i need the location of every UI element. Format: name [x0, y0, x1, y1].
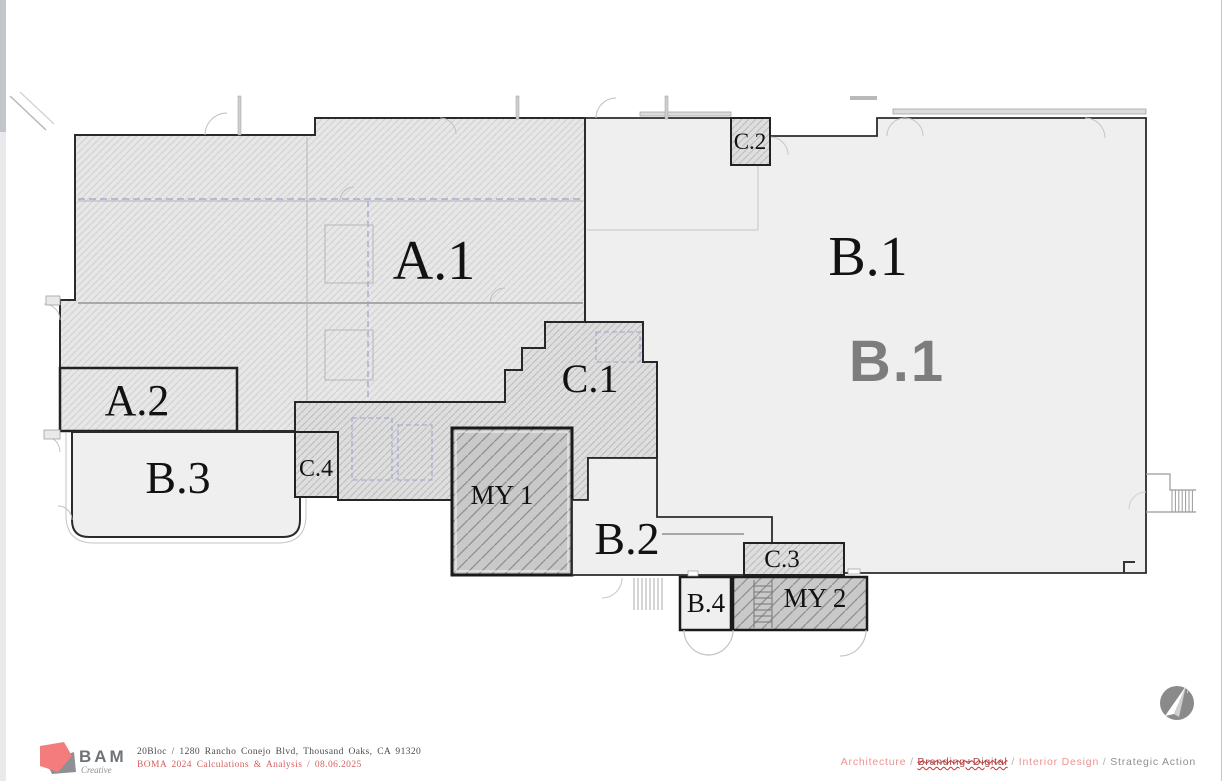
brand-tagline: Creative — [81, 765, 112, 775]
zone-b1-label: B.1 — [828, 226, 907, 288]
window-band — [893, 109, 1146, 114]
north-arrow-icon: N — [1160, 681, 1194, 720]
zone-c1-label: C.1 — [562, 356, 619, 401]
zone-a1-label: A.1 — [393, 230, 475, 292]
boma-plan-sheet: A.1 B.1 B.1 A.2 B.3 B.2 C.1 C.2 C.3 C.4 … — [0, 0, 1228, 781]
services-tagline: Architecture / Branding+Digital / Interi… — [841, 756, 1196, 768]
service-branding-digital: Branding+Digital — [918, 756, 1008, 768]
zone-b1-watermark: B.1 — [849, 329, 945, 394]
zone-my2-label: MY 2 — [784, 583, 847, 613]
zone-b3-label: B.3 — [145, 452, 210, 503]
zone-a2-label: A.2 — [105, 376, 170, 425]
service-separator: / — [1011, 756, 1015, 768]
bam-logo-icon — [36, 740, 80, 776]
zone-c2-label: C.2 — [734, 129, 767, 154]
address-line: 20Bloc / 1280 Rancho Conejo Blvd, Thousa… — [137, 747, 421, 757]
service-interior-design: Interior Design — [1019, 756, 1099, 768]
brand-name: BAM — [79, 747, 127, 767]
boma-line: BOMA 2024 Calculations & Analysis / 08.0… — [137, 760, 362, 770]
floor-plan: A.1 B.1 B.1 A.2 B.3 B.2 C.1 C.2 C.3 C.4 … — [0, 0, 1228, 781]
service-separator: / — [910, 756, 914, 768]
service-strategic-action: Strategic Action — [1110, 756, 1196, 768]
wall-tick — [850, 96, 877, 100]
zone-b4-label: B.4 — [687, 588, 726, 618]
north-letter: N — [1187, 688, 1193, 695]
zone-b2-label: B.2 — [594, 513, 659, 564]
window-band — [640, 112, 731, 116]
service-architecture: Architecture — [841, 756, 907, 768]
service-separator: / — [1103, 756, 1107, 768]
zone-c4-label: C.4 — [299, 456, 333, 482]
zone-my1-label: MY 1 — [471, 480, 534, 510]
zone-c3-label: C.3 — [764, 546, 799, 573]
